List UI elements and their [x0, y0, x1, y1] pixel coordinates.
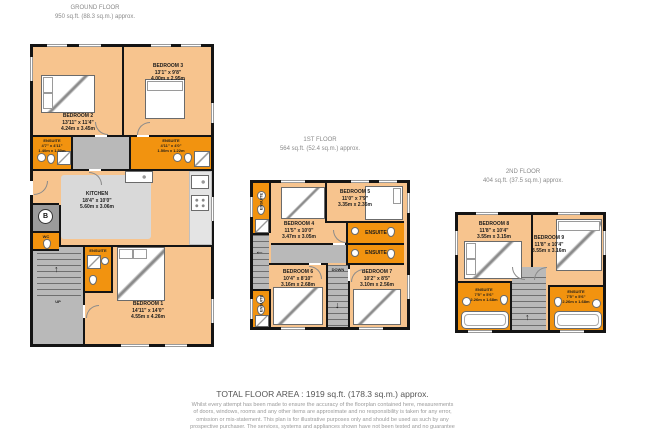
window: [165, 344, 187, 347]
room-dims-m: 3.55m x 3.16m: [520, 248, 578, 255]
ensuite7-label: ENSUITE: [353, 250, 399, 257]
landing-area: [271, 245, 346, 263]
kitchen-sink-icon: [191, 175, 209, 189]
window: [351, 180, 369, 183]
wall: [327, 221, 404, 223]
bedroom2-label: BEDROOM 2 13'11" x 11'4" 4.24m x 3.45m: [35, 113, 121, 133]
second-floor-title: 2ND FLOOR 404 sq.ft. (37.5 sq.m.) approx…: [458, 168, 588, 186]
sink-icon: [173, 153, 182, 162]
window: [468, 330, 492, 333]
room-dims-m: 4.55m x 4.26m: [85, 314, 211, 321]
room-dims-m: 2.26m x 1.68m: [552, 299, 600, 304]
room-dims-m: 3.47m x 3.05m: [269, 234, 329, 241]
wall: [85, 291, 113, 293]
window: [30, 57, 33, 81]
first-floor-title: 1ST FLOOR 564 sq.ft. (52.4 sq.m.) approx…: [255, 136, 385, 154]
window: [603, 231, 606, 255]
window: [211, 299, 214, 323]
door-gap: [89, 169, 101, 171]
boiler-badge: B: [38, 209, 53, 224]
stairs: [328, 265, 348, 327]
pillow-icon: [466, 243, 476, 259]
wall: [269, 289, 271, 327]
wall: [33, 169, 211, 171]
stairs: [512, 277, 546, 330]
bathtub-icon: [554, 311, 602, 329]
wall: [458, 281, 510, 283]
wall: [33, 249, 59, 251]
shower-icon: [57, 151, 71, 165]
bedroom9-label: BEDROOM 9 11'8" x 10'4" 3.55m x 3.16m: [520, 235, 578, 255]
window: [250, 299, 253, 319]
window: [379, 180, 397, 183]
stairs: [37, 253, 81, 297]
stairs: [253, 235, 269, 289]
ensuite1-label: ENSUITE: [85, 248, 111, 253]
window: [211, 103, 214, 123]
first-floor-plan: ← ↓ DOWN ENSUITE BEDROOM 4 11'5" x 10'0"…: [250, 180, 410, 330]
room-dims-m: 2.26m x 1.68m: [460, 297, 508, 302]
floor-name: GROUND FLOOR: [30, 4, 160, 13]
ensuite2-label: ENSUITE 4'7" x 4'11" 1.40m x 1.50m: [33, 138, 71, 153]
window: [211, 197, 214, 221]
room-dims-m: 3.16m x 2.68m: [269, 282, 327, 289]
door-arc: [333, 230, 346, 243]
room-dims-m: 3.10m x 2.56m: [348, 282, 406, 289]
door-gap: [309, 263, 321, 265]
bed-icon: [353, 289, 401, 325]
room-dims-m: 4.24m x 3.45m: [35, 126, 121, 133]
window: [558, 212, 580, 215]
wall: [33, 231, 59, 233]
shower-icon: [194, 151, 210, 167]
wc-label: WC: [33, 234, 59, 239]
wall: [253, 233, 269, 235]
wall: [548, 285, 603, 287]
ensuite5-label: ENSUITE: [353, 230, 399, 237]
bedroom1-label: BEDROOM 1 14'11" x 14'0" 4.55m x 4.26m: [85, 301, 211, 321]
shower-icon: [87, 255, 101, 269]
wall: [33, 135, 211, 137]
ground-floor-plan: B ↑ UP BEDROOM 2 13'11" x 11'4" 4.24m x …: [30, 44, 214, 347]
window: [181, 44, 201, 47]
door-gap: [348, 269, 350, 281]
sink-icon: [37, 153, 46, 162]
window: [151, 44, 171, 47]
window: [359, 327, 383, 330]
ground-floor-title: GROUND FLOOR 950 sq.ft. (88.3 sq.m.) app…: [30, 4, 160, 22]
door-arc: [89, 172, 102, 185]
door-gap: [95, 135, 107, 137]
disclaimer-line: Whilst every attempt has been made to en…: [0, 402, 645, 409]
wall: [122, 47, 124, 135]
room-dims-m: 4.00m x 2.95m: [125, 76, 211, 83]
room-dims-m: 1.40m x 1.50m: [33, 148, 71, 153]
floor-name: 1ST FLOOR: [255, 136, 385, 145]
sink-unit-icon: [125, 171, 153, 183]
wall: [348, 243, 404, 245]
window: [121, 344, 149, 347]
stairs-down-label: DOWN: [328, 267, 348, 272]
room-dims-m: 1.50m x 1.22m: [131, 148, 211, 153]
wall: [348, 263, 404, 265]
floor-area: 404 sq.ft. (37.5 sq.m.) approx.: [458, 177, 588, 186]
ensuite8-label: ENSUITE 7'5" x 5'6" 2.26m x 1.68m: [460, 287, 508, 302]
disclaimer-line: omission or mis-statement. This plan is …: [0, 417, 645, 424]
ensuite3-label: ENSUITE 4'11" x 4'0" 1.50m x 1.22m: [131, 138, 211, 153]
ensuite4-label: ENSUITE: [259, 182, 264, 222]
pillow-icon: [393, 188, 401, 204]
ensuite9-label: ENSUITE 7'5" x 5'6" 2.26m x 1.68m: [552, 289, 600, 304]
room-dims-m: 5.60m x 3.06m: [45, 204, 149, 211]
door-gap: [30, 181, 33, 195]
door-gap: [333, 243, 345, 245]
door-arc: [95, 122, 108, 135]
disclaimer-line: prospective purchaser. The services, sys…: [0, 424, 645, 430]
pillow-icon: [119, 249, 133, 259]
arrow-down-icon: ↓: [335, 301, 340, 310]
window: [476, 212, 498, 215]
window: [79, 44, 101, 47]
wall: [111, 247, 113, 291]
wall: [548, 285, 550, 330]
room-name: ENSUITE: [353, 250, 399, 257]
bedroom5-label: BEDROOM 5 11'0" x 7'9" 3.35m x 2.35m: [329, 189, 381, 209]
second-floor-plan: ↑ BEDROOM 8 11'8" x 10'4" 3.55m x 3.15m …: [455, 212, 606, 333]
door-gap: [137, 135, 149, 137]
hob-icon: [191, 195, 209, 211]
bedroom3-label: BEDROOM 3 13'1" x 9'8" 4.00m x 2.95m: [125, 63, 211, 83]
bedroom8-label: BEDROOM 8 11'8" x 10'4" 3.55m x 3.15m: [460, 221, 528, 241]
pillow-icon: [43, 77, 53, 93]
stairs-up-label: UP: [33, 299, 83, 304]
pillow-icon: [147, 81, 183, 91]
kitchen-label: KITCHEN 18'4" x 10'0" 5.60m x 3.06m: [45, 191, 149, 211]
window: [407, 275, 410, 299]
window: [455, 231, 458, 255]
ensuite-bedroom1-area: [85, 247, 111, 291]
ensuite6-label: ENSUITE: [259, 284, 264, 324]
wall: [325, 183, 327, 223]
window: [281, 327, 305, 330]
door-arc: [137, 122, 150, 135]
pillow-icon: [43, 93, 53, 109]
pillow-icon: [558, 221, 600, 231]
arrow-up-icon: ↑: [54, 265, 59, 274]
bathtub-icon: [461, 311, 509, 329]
bed-icon: [281, 187, 325, 219]
wall: [71, 137, 73, 169]
room-dims-m: 3.35m x 2.35m: [329, 202, 381, 209]
room-name: ENSUITE: [353, 230, 399, 237]
wall: [510, 281, 512, 330]
pillow-icon: [466, 259, 476, 275]
floor-area: 950 sq.ft. (88.3 sq.m.) approx.: [30, 13, 160, 22]
floorplan-canvas: GROUND FLOOR 950 sq.ft. (88.3 sq.m.) app…: [0, 0, 645, 430]
entrance-hall-area: [73, 137, 129, 169]
total-floor-area: TOTAL FLOOR AREA : 1919 sq.ft. (178.3 sq…: [0, 389, 645, 399]
wall: [83, 245, 85, 344]
door-arc: [309, 266, 322, 279]
bed-icon: [273, 287, 323, 325]
window: [47, 44, 67, 47]
room-dims-m: 3.55m x 3.15m: [460, 234, 528, 241]
arrow-left-icon: ←: [255, 247, 264, 256]
door-gap: [83, 305, 85, 318]
window: [407, 193, 410, 213]
bedroom4-label: BEDROOM 4 11'5" x 10'0" 3.47m x 3.05m: [269, 221, 329, 241]
window: [281, 180, 305, 183]
window: [560, 330, 584, 333]
pillow-icon: [133, 249, 147, 259]
floor-name: 2ND FLOOR: [458, 168, 588, 177]
disclaimer: Whilst every attempt has been made to en…: [0, 402, 645, 430]
sink-icon: [101, 257, 109, 265]
window: [250, 197, 253, 217]
arrow-up-icon: ↑: [525, 313, 530, 322]
disclaimer-line: of doors, windows, rooms and any other i…: [0, 409, 645, 416]
floor-area: 564 sq.ft. (52.4 sq.m.) approx.: [255, 145, 385, 154]
